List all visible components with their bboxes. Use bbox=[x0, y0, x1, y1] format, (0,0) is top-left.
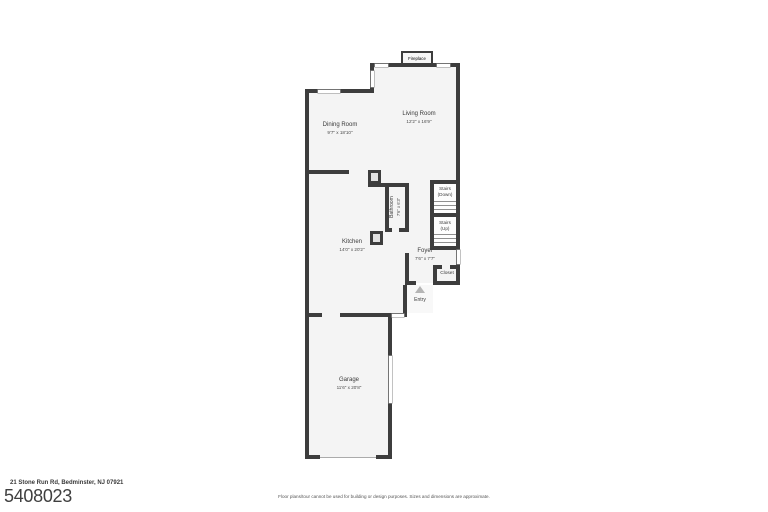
wall-closet-top-right bbox=[450, 265, 460, 269]
fireplace-label: Fireplace bbox=[408, 56, 426, 61]
wall-stairs-top bbox=[430, 180, 460, 184]
window-garage-east bbox=[389, 356, 392, 403]
stair-step bbox=[434, 238, 456, 239]
living-room-label: Living Room 12'2" x 16'9" bbox=[384, 111, 454, 125]
bathroom-label: Bathroom 7'6" x 6'3" bbox=[389, 185, 405, 229]
window-living-left bbox=[371, 71, 374, 87]
room-name: Dining Room bbox=[305, 122, 375, 130]
room-name: Bathroom bbox=[389, 185, 396, 229]
stairs-up-line2: (Up) bbox=[432, 226, 458, 232]
stair-step bbox=[434, 205, 456, 206]
floor-plan-page: Fireplace Living Room 12'2" bbox=[0, 0, 768, 512]
garage-door-line bbox=[320, 457, 376, 459]
stair-step bbox=[434, 234, 456, 235]
wall-garage-south-right bbox=[376, 455, 392, 459]
room-name: Foyer bbox=[404, 248, 446, 256]
stairs-down-label: Stairs (Down) bbox=[432, 186, 458, 198]
garage-label: Garage 11'6" x 20'8" bbox=[314, 377, 384, 391]
window-entry-south bbox=[392, 314, 404, 317]
room-dims: 12'2" x 16'9" bbox=[384, 119, 454, 125]
stair-step bbox=[434, 209, 456, 210]
duct-box-kitchen-top bbox=[368, 170, 381, 184]
stair-step bbox=[434, 242, 456, 243]
wall-garage-south-left bbox=[305, 455, 320, 459]
wall-dining-kitchen-divider bbox=[305, 170, 349, 174]
stair-step bbox=[434, 201, 456, 202]
kitchen-label: Kitchen 14'0" x 20'2" bbox=[317, 239, 387, 253]
wall-west bbox=[305, 89, 309, 459]
dining-room-label: Dining Room 9'7" x 18'10" bbox=[305, 122, 375, 136]
room-dims: 11'6" x 20'8" bbox=[314, 385, 384, 391]
wall-stairs-divider bbox=[430, 213, 460, 217]
room-dims: 14'0" x 20'2" bbox=[317, 247, 387, 253]
wall-garage-top-left bbox=[305, 313, 322, 317]
foyer-label: Foyer 7'6" x 7'7" bbox=[404, 248, 446, 262]
window-living-top-left bbox=[375, 64, 388, 67]
stairs-down-line2: (Down) bbox=[432, 192, 458, 198]
window-dining-top bbox=[318, 90, 340, 93]
room-dims: 9'7" x 18'10" bbox=[305, 130, 375, 136]
wall-bathroom-right bbox=[405, 183, 409, 232]
stairs-up-label: Stairs (Up) bbox=[432, 220, 458, 232]
room-name: Garage bbox=[314, 377, 384, 385]
entry-label: Entry bbox=[407, 297, 433, 304]
living-room-area bbox=[372, 65, 458, 185]
room-name: Living Room bbox=[384, 111, 454, 119]
room-name: Kitchen bbox=[317, 239, 387, 247]
room-dims: 7'6" x 6'3" bbox=[396, 185, 401, 229]
closet-label: Closet bbox=[436, 271, 458, 277]
entry-arrow-icon bbox=[415, 286, 425, 293]
disclaimer-text: Floor plans/tour cannot be used for buil… bbox=[0, 494, 768, 499]
wall-garage-top-right bbox=[340, 313, 392, 317]
wall-closet-south bbox=[433, 281, 460, 285]
window-foyer-east bbox=[457, 250, 460, 264]
room-dims: 7'6" x 7'7" bbox=[404, 256, 446, 262]
window-living-top-right bbox=[437, 64, 450, 67]
